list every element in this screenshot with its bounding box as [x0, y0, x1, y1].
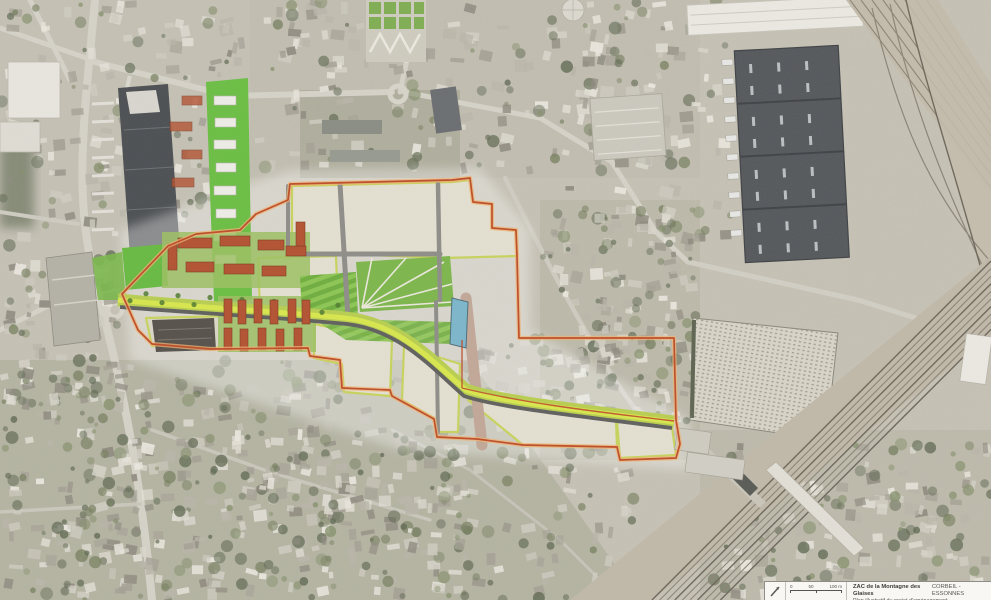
plan-city: CORBEIL - ESSONNES	[932, 584, 987, 597]
plan-canvas: 0 50 100 m ZAC de la Montagne des Glaise…	[0, 0, 991, 600]
photo-grain	[0, 0, 991, 600]
legend-bar: 0 50 100 m ZAC de la Montagne des Glaise…	[764, 581, 991, 600]
north-arrow-icon	[765, 582, 786, 600]
scale-label-50: 50	[808, 584, 813, 589]
plan-title: ZAC de la Montagne des Glaises	[853, 584, 932, 597]
aerial-map	[0, 0, 991, 600]
title-block: ZAC de la Montagne des Glaises CORBEIL -…	[846, 582, 991, 600]
scale-label-0: 0	[790, 584, 793, 589]
scale-bar: 0 50 100 m	[786, 582, 846, 600]
scale-label-100: 100 m	[829, 584, 842, 589]
